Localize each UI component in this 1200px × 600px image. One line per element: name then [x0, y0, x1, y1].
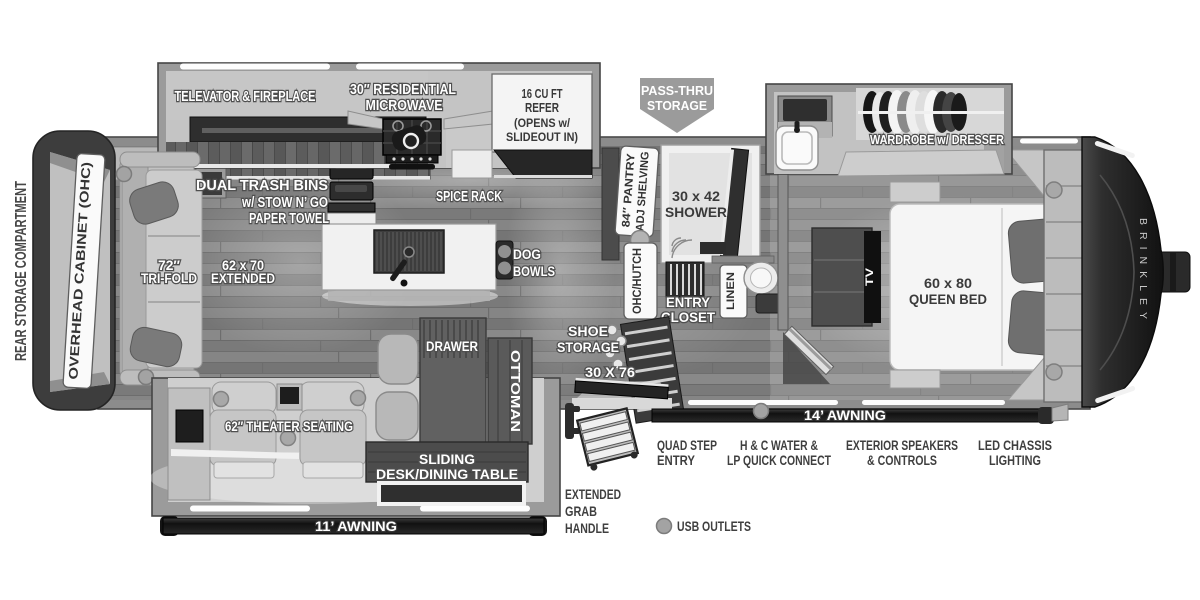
svg-text:BRINKLEY: BRINKLEY: [1137, 218, 1149, 326]
svg-text:DESK/DINING TABLE: DESK/DINING TABLE: [376, 467, 518, 482]
svg-text:(OPENS w/: (OPENS w/: [514, 116, 571, 130]
svg-text:QUAD STEP: QUAD STEP: [657, 438, 717, 454]
svg-text:PAPER TOWEL: PAPER TOWEL: [249, 211, 329, 227]
svg-text:ENTRY: ENTRY: [666, 295, 710, 310]
svg-text:11’ AWNING: 11’ AWNING: [315, 519, 397, 534]
svg-text:DOG: DOG: [513, 247, 541, 262]
svg-text:LINEN: LINEN: [725, 272, 737, 310]
svg-text:WARDROBE w/ DRESSER: WARDROBE w/ DRESSER: [870, 133, 1004, 147]
svg-text:62″ THEATER SEATING: 62″ THEATER SEATING: [225, 418, 353, 434]
svg-text:SPICE RACK: SPICE RACK: [436, 189, 502, 205]
svg-text:60 x 80: 60 x 80: [924, 276, 972, 291]
svg-text:REAR STORAGE COMPARTMENT: REAR STORAGE COMPARTMENT: [13, 181, 30, 361]
svg-text:OHC/HUTCH: OHC/HUTCH: [630, 248, 644, 314]
svg-text:REFER: REFER: [525, 100, 559, 115]
svg-text:ENTRY: ENTRY: [657, 453, 695, 469]
svg-text:EXTENDED: EXTENDED: [211, 271, 275, 286]
svg-text:DRAWER: DRAWER: [426, 339, 478, 354]
svg-text:30 X 76: 30 X 76: [585, 365, 636, 380]
svg-text:w/ STOW N’ GO: w/ STOW N’ GO: [241, 195, 328, 211]
svg-text:EXTERIOR SPEAKERS: EXTERIOR SPEAKERS: [846, 438, 958, 454]
svg-text:30″ RESIDENTIAL: 30″ RESIDENTIAL: [350, 82, 456, 98]
svg-text:& CONTROLS: & CONTROLS: [867, 453, 937, 469]
svg-text:OTTOMAN: OTTOMAN: [508, 350, 522, 432]
svg-text:PASS-THRU: PASS-THRU: [641, 83, 713, 98]
svg-text:MICROWAVE: MICROWAVE: [366, 98, 443, 114]
svg-text:LP QUICK CONNECT: LP QUICK CONNECT: [727, 453, 831, 469]
svg-text:STORAGE: STORAGE: [647, 98, 707, 113]
svg-text:BOWLS: BOWLS: [513, 264, 555, 279]
svg-text:DUAL TRASH BINS: DUAL TRASH BINS: [196, 178, 328, 194]
svg-text:LED CHASSIS: LED CHASSIS: [978, 438, 1052, 454]
svg-text:GRAB: GRAB: [565, 503, 597, 519]
svg-text:SLIDING: SLIDING: [419, 452, 475, 467]
svg-text:USB OUTLETS: USB OUTLETS: [677, 519, 751, 534]
svg-text:14’ AWNING: 14’ AWNING: [804, 408, 886, 423]
svg-text:TELEVATOR & FIREPLACE: TELEVATOR & FIREPLACE: [175, 89, 316, 105]
svg-text:30 x 42: 30 x 42: [672, 188, 720, 204]
svg-text:LIGHTING: LIGHTING: [989, 453, 1041, 469]
svg-text:EXTENDED: EXTENDED: [565, 486, 621, 502]
svg-text:TV: TV: [864, 267, 876, 286]
svg-text:HANDLE: HANDLE: [565, 520, 609, 536]
svg-text:H & C WATER &: H & C WATER &: [740, 438, 818, 454]
svg-text:STORAGE: STORAGE: [557, 340, 619, 355]
svg-text:QUEEN BED: QUEEN BED: [909, 292, 987, 307]
svg-text:SLIDEOUT IN): SLIDEOUT IN): [506, 130, 578, 144]
svg-text:SHOWER: SHOWER: [665, 204, 727, 220]
svg-text:TRI-FOLD: TRI-FOLD: [141, 271, 197, 286]
svg-text:SHOE: SHOE: [568, 324, 608, 339]
svg-text:16 CU FT: 16 CU FT: [522, 86, 563, 101]
